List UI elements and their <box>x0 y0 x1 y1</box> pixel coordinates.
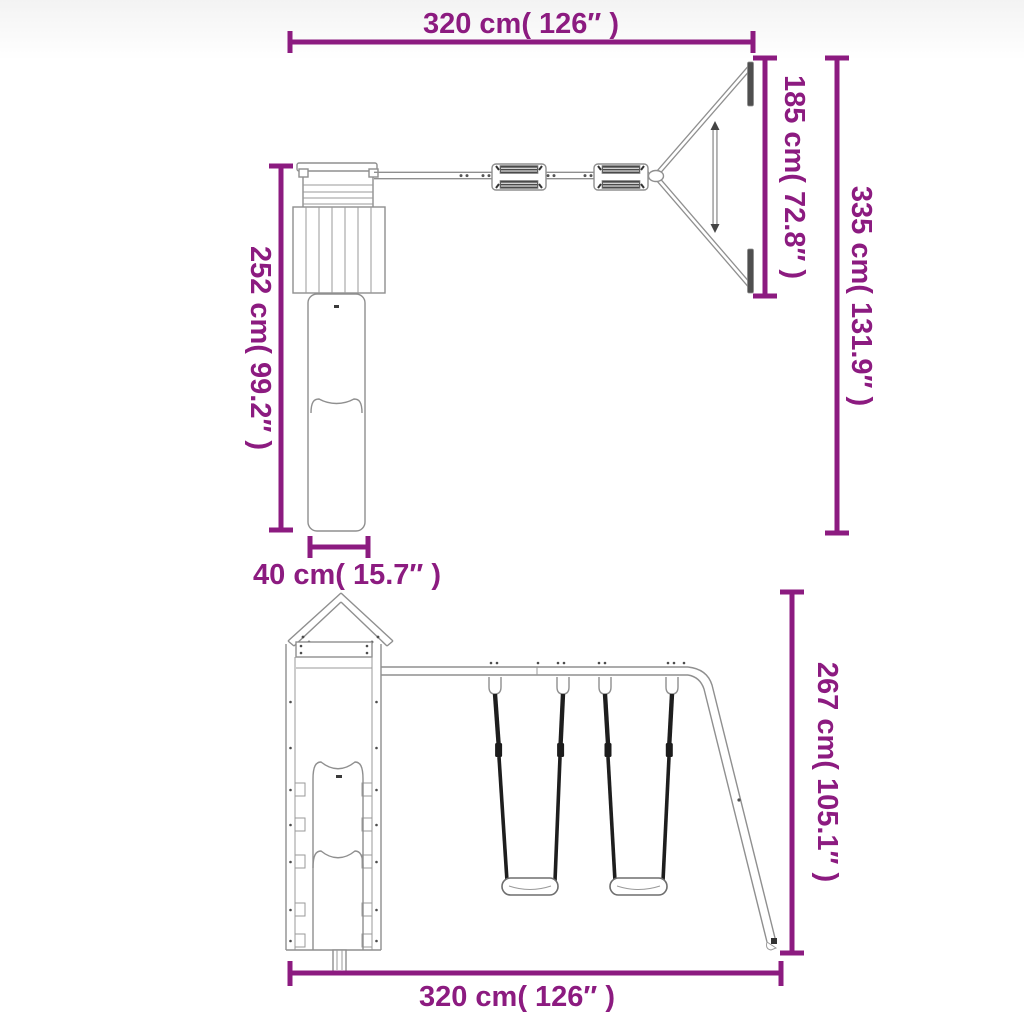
seat-slab <box>602 181 640 189</box>
swing-rope-lower <box>555 757 560 881</box>
beam-top-bolts <box>490 662 686 665</box>
dimension-bottom-width: 320 cm( 126″ ) <box>290 961 781 1013</box>
tower-ridge-bar <box>297 163 377 171</box>
bolt-dot <box>289 824 292 827</box>
support-leg-front-view <box>688 667 777 950</box>
tower-top-view <box>293 163 385 293</box>
bolt-dot <box>375 747 378 750</box>
bolt-dot <box>366 652 369 655</box>
crossbar-arrow-bottom <box>711 224 720 233</box>
dim-label-overall-height: 267 cm( 105.1″ ) <box>811 662 843 882</box>
roof-band-right <box>341 593 393 646</box>
bolt-dot <box>289 789 292 792</box>
rung-tab <box>295 934 305 947</box>
leg-inner-line <box>688 675 767 942</box>
bolt-dot <box>537 662 540 665</box>
dim-label-aframe-depth: 185 cm( 72.8″ ) <box>778 75 810 279</box>
slide-hump-lower <box>313 851 363 868</box>
dim-label-bottom-width: 320 cm( 126″ ) <box>419 981 615 1013</box>
swing-hook <box>599 677 611 694</box>
roof-front-view <box>288 593 393 646</box>
rope-buckle <box>666 743 673 757</box>
bolt-dot <box>466 174 469 177</box>
dimension-aframe-depth: 185 cm( 72.8″ ) <box>753 58 810 296</box>
beam-aframe-junction <box>649 171 664 182</box>
swing-hook <box>557 677 569 694</box>
dimension-slide-width: 40 cm( 15.7″ ) <box>253 536 441 591</box>
bolt-dot <box>375 789 378 792</box>
swing-rope-lower <box>499 757 507 881</box>
seat-slab <box>500 166 538 174</box>
crossbar-arrow-top <box>711 121 720 130</box>
rope-buckle <box>557 743 564 757</box>
swing-hook <box>666 677 678 694</box>
bolt-dot <box>289 940 292 943</box>
bolt-dot <box>377 636 380 639</box>
slide-bolt-mark <box>334 305 339 308</box>
bolt-dot <box>460 174 463 177</box>
dim-label-total-depth: 335 cm( 131.9″ ) <box>845 186 877 406</box>
leg-foot-bolt <box>771 938 777 944</box>
bolt-dot <box>490 662 493 665</box>
bolt-dot <box>604 662 607 665</box>
dim-label-tower-depth: 252 cm( 99.2″ ) <box>244 246 276 450</box>
tower-front-view <box>286 642 381 972</box>
tower-foot-tab <box>333 950 346 972</box>
bolt-dot <box>488 174 491 177</box>
bolt-dot <box>375 940 378 943</box>
tower-top-board <box>296 642 372 657</box>
bolt-dot <box>302 636 305 639</box>
rung-tab <box>295 783 305 796</box>
dimension-overall-height: 267 cm( 105.1″ ) <box>780 592 843 953</box>
bolt-dot <box>375 701 378 704</box>
dimension-top-width: 320 cm( 126″ ) <box>290 8 753 53</box>
swing-rope-lower <box>608 757 615 881</box>
bolt-dot <box>547 174 550 177</box>
bolt-dot <box>289 909 292 912</box>
tower-corner-post-left <box>299 169 308 177</box>
rung-tab <box>295 903 305 916</box>
aframe-leg-lower-core <box>657 178 751 287</box>
swing-rope-lower <box>663 757 669 881</box>
seat-slab <box>602 166 640 174</box>
bolt-dot <box>375 861 378 864</box>
swing-seat-pair-top-view-2 <box>594 164 648 190</box>
rung-tab <box>295 855 305 868</box>
slide-bolt-mark <box>336 775 342 778</box>
rope-buckle <box>605 743 612 757</box>
dimension-diagram-canvas: 320 cm( 126″ ) 252 cm( 99.2″ ) 185 cm( 7… <box>0 0 1024 1024</box>
aframe-top-view <box>649 62 754 293</box>
bolt-dot <box>289 701 292 704</box>
rope-buckle <box>495 743 502 757</box>
slide-front-view <box>313 762 363 950</box>
slide-top-view <box>308 294 365 531</box>
aframe-leg-upper-core <box>657 66 751 174</box>
aframe-foot-bottom <box>748 249 754 293</box>
bolt-dot <box>289 861 292 864</box>
tower-rung-tabs <box>295 783 372 947</box>
bolt-dot <box>300 645 303 648</box>
swing-rope-upper <box>495 694 499 744</box>
swings-front-view <box>489 677 678 895</box>
swing-seat-pair-top-view-1 <box>492 164 546 190</box>
bolt-dot <box>737 798 740 801</box>
front-view-drawing <box>286 593 777 972</box>
bolt-dot <box>673 662 676 665</box>
bolt-dot <box>375 824 378 827</box>
bolt-dot <box>375 909 378 912</box>
top-view-drawing <box>293 62 754 531</box>
bolt-dot <box>553 174 556 177</box>
bolt-dot <box>496 662 499 665</box>
bolt-dot <box>683 662 686 665</box>
bolt-dot <box>667 662 670 665</box>
slide-body-top-view <box>308 294 365 531</box>
aframe-foot-top <box>748 62 754 106</box>
leg-outer-line <box>688 667 775 938</box>
rung-tab <box>295 818 305 831</box>
bolt-dot <box>300 652 303 655</box>
bolt-dot <box>557 662 560 665</box>
swing-hook <box>489 677 501 694</box>
bolt-dot <box>563 662 566 665</box>
dimension-tower-depth: 252 cm( 99.2″ ) <box>244 166 293 530</box>
bolt-dot <box>482 174 485 177</box>
swing-rope-upper <box>669 694 672 744</box>
dimension-total-depth: 335 cm( 131.9″ ) <box>825 58 877 533</box>
dim-label-slide-width: 40 cm( 15.7″ ) <box>253 559 441 591</box>
bolt-dot <box>598 662 601 665</box>
bolt-dot <box>289 747 292 750</box>
bolt-dot <box>590 174 593 177</box>
dim-label-top-width: 320 cm( 126″ ) <box>423 8 619 40</box>
seat-slab <box>500 181 538 189</box>
beam-front-view <box>381 662 688 675</box>
swing-rope-upper <box>605 694 608 744</box>
swing-rope-upper <box>561 694 563 744</box>
bolt-dot <box>366 645 369 648</box>
roof-band-left <box>288 593 341 646</box>
bolt-dot <box>584 174 587 177</box>
